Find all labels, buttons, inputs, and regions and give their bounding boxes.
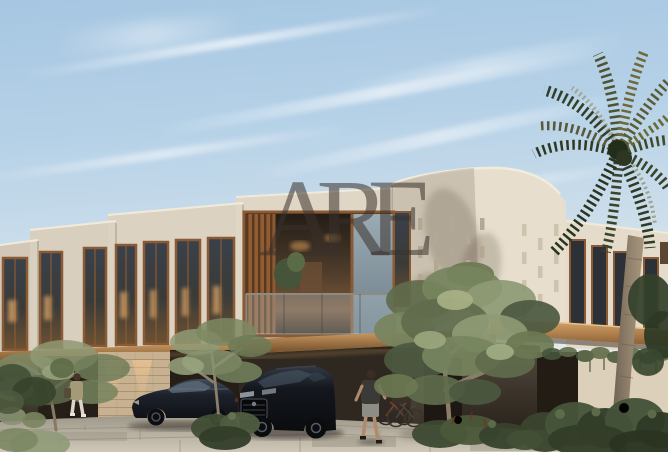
small-plant <box>50 358 74 378</box>
ceiling-light <box>324 234 340 242</box>
ceiling-light <box>290 241 310 251</box>
taillight <box>235 398 238 402</box>
glass-balustrade <box>246 294 394 334</box>
shoe <box>81 414 86 417</box>
shoe <box>70 413 75 416</box>
facade-slot <box>660 242 668 264</box>
wheel <box>148 409 165 426</box>
shoe <box>376 440 382 444</box>
bag <box>64 388 71 398</box>
balcony <box>244 212 394 336</box>
scene-illustration <box>0 0 668 452</box>
palm-crown-core <box>616 150 632 166</box>
shoe <box>360 436 366 440</box>
wheel <box>306 418 327 439</box>
balcony-plant <box>287 252 305 272</box>
badge <box>252 402 256 406</box>
head <box>366 369 375 378</box>
head <box>73 373 81 381</box>
shorts <box>362 402 379 417</box>
torso <box>70 381 83 400</box>
architectural-render: ARE <box>0 0 668 452</box>
